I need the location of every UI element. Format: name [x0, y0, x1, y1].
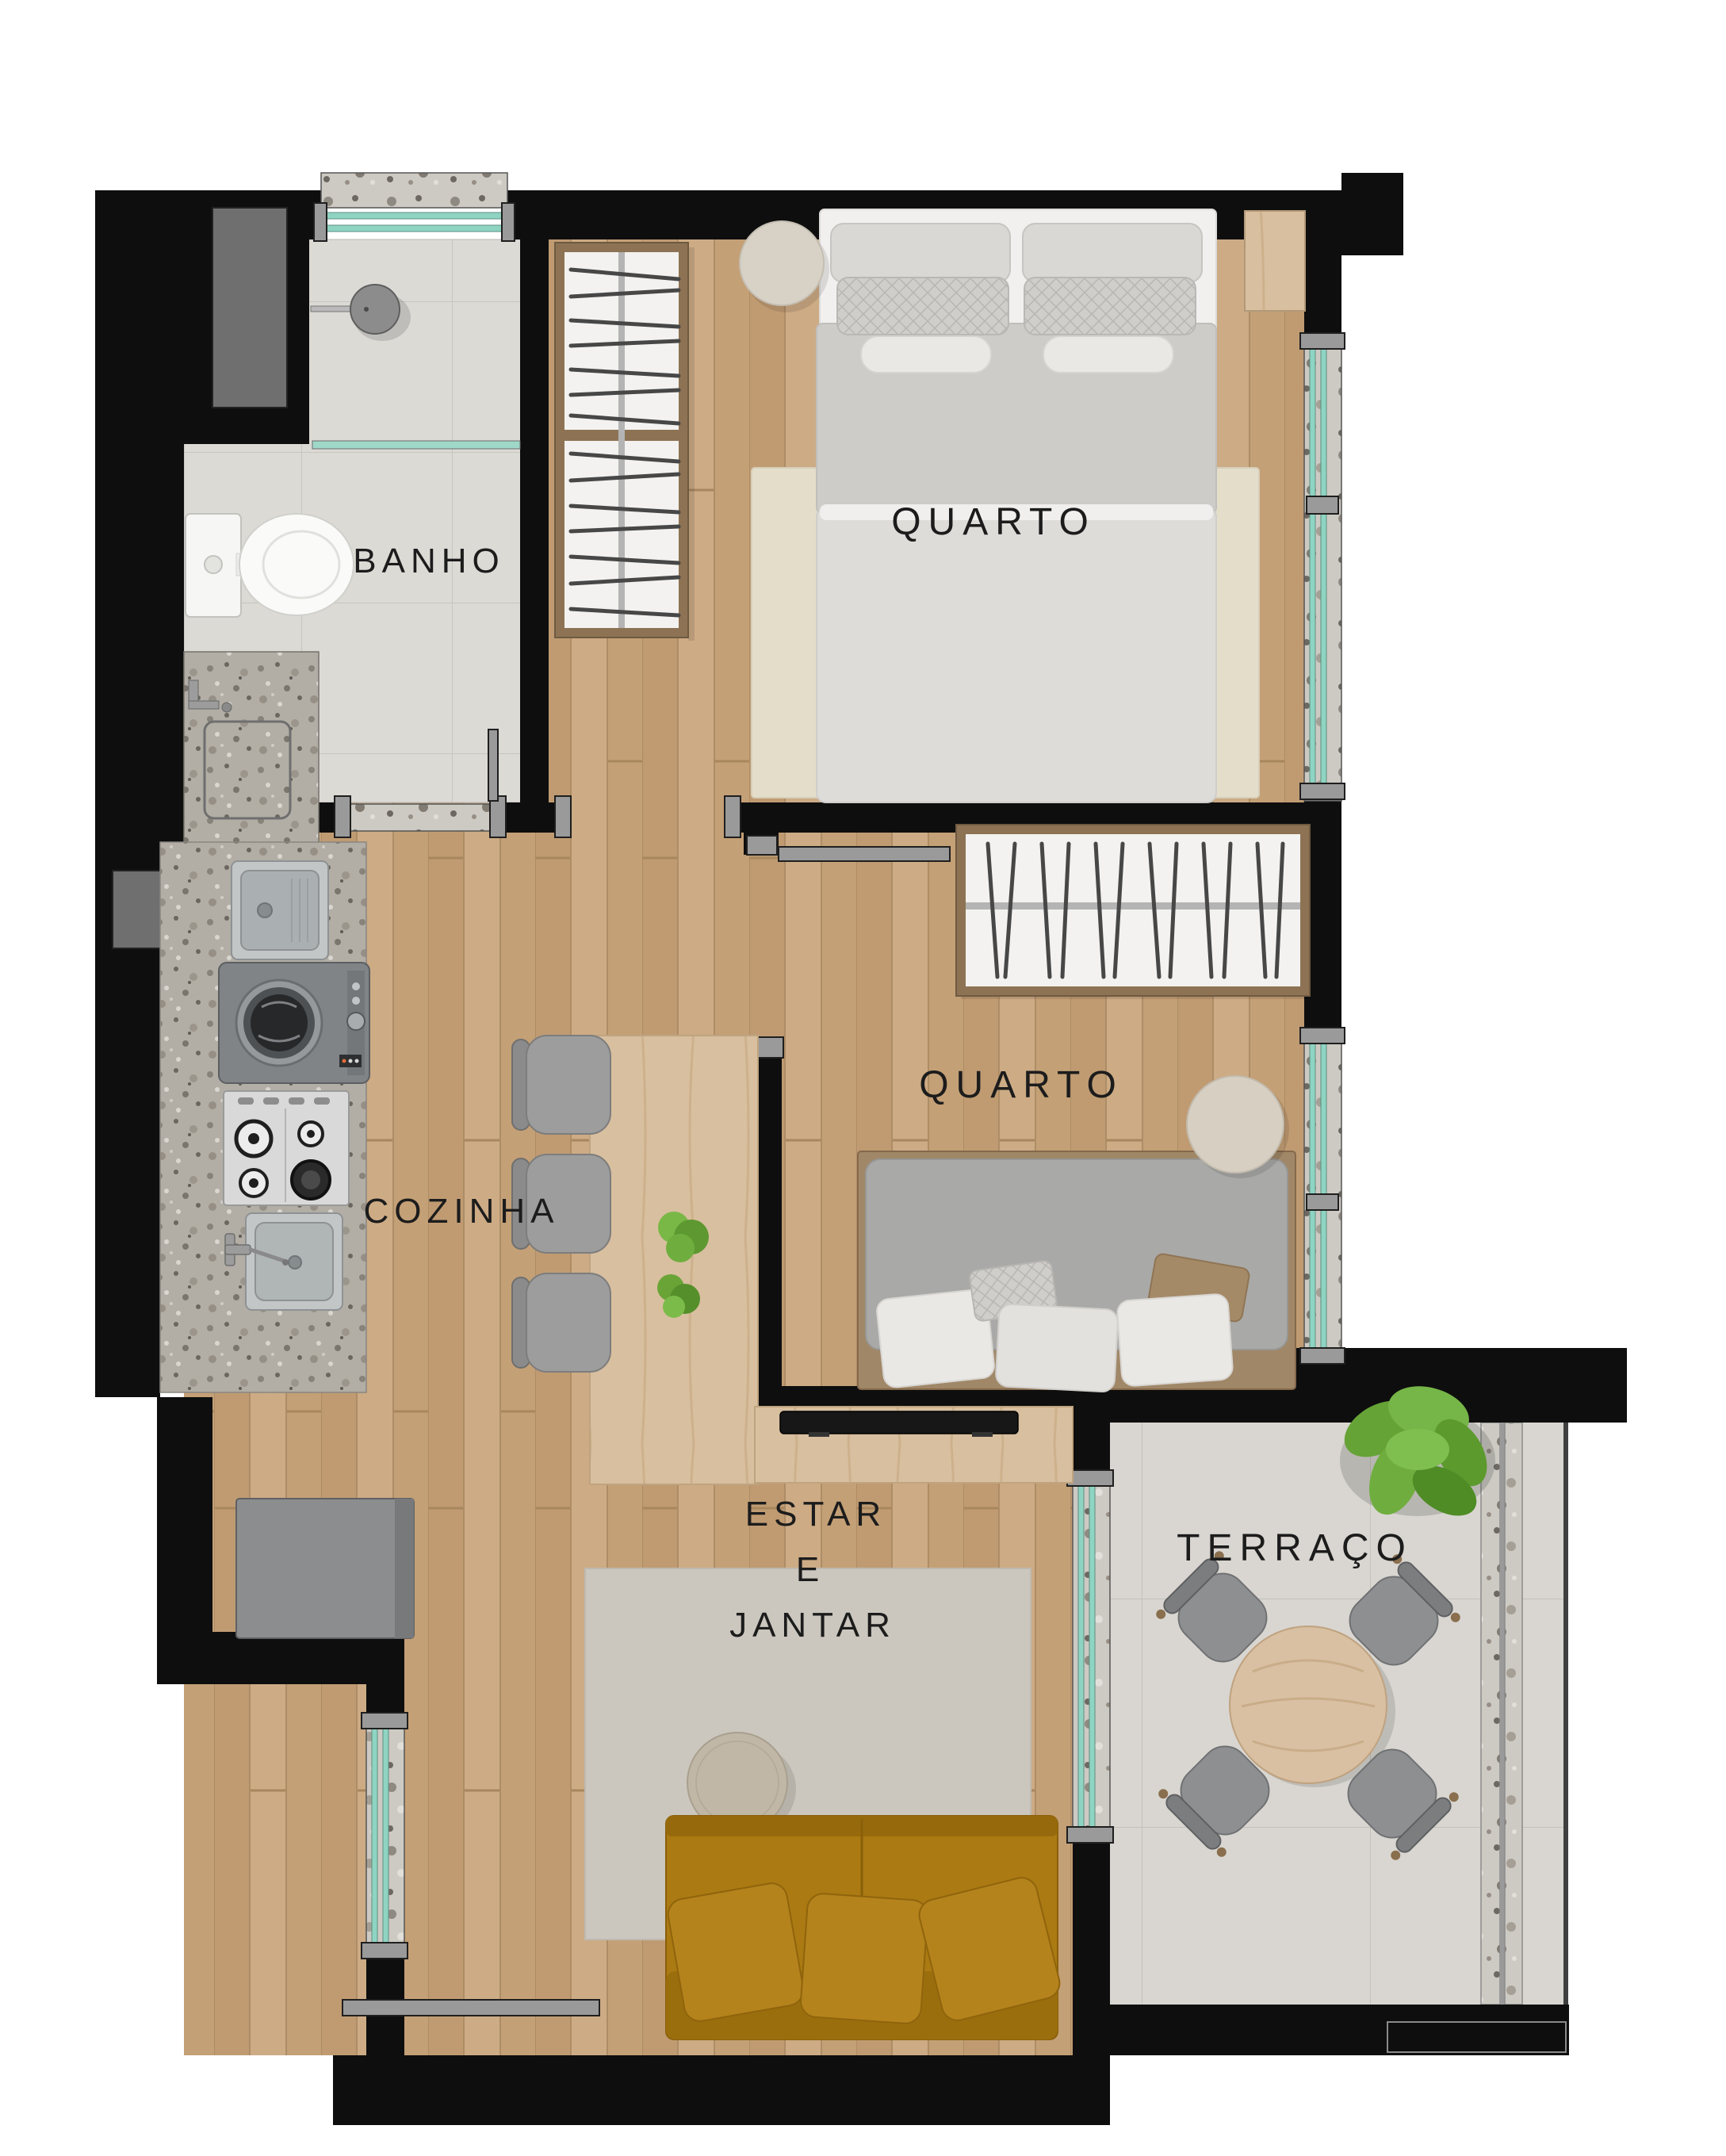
cooktop: [224, 1091, 349, 1205]
room-label-bedroom-2: QUARTO: [919, 1064, 1123, 1106]
terrace-border-gap: [1500, 1423, 1505, 2005]
wardrobe-bedroom-2: [956, 825, 1310, 999]
pillow-patterned: [1024, 278, 1196, 335]
window-bedroom-1: [1300, 333, 1345, 801]
shaft-duct-top: [212, 208, 287, 408]
room-label-living-1: ESTAR: [745, 1495, 886, 1534]
washing-machine: [219, 963, 369, 1083]
room-label-bathroom: BANHO: [353, 542, 504, 580]
shower-glass-divider: [312, 441, 520, 449]
floor-plan-image: BANHO QUARTO QUARTO COZINHA ESTAR E JANT…: [0, 0, 1726, 2156]
room-label-terrace: TERRAÇO: [1177, 1527, 1413, 1569]
pillow-patterned: [837, 278, 1008, 335]
pillow: [831, 224, 1010, 282]
pillow: [1116, 1293, 1233, 1387]
refrigerator: [236, 1499, 414, 1638]
sofa-bed: [858, 1151, 1295, 1392]
window-bedroom-2: [1300, 1028, 1345, 1364]
door-leaf-bathroom: [488, 730, 498, 801]
bar-counter: [590, 1036, 758, 1484]
terrace-glass-door: [1067, 1470, 1113, 1843]
sofa: [666, 1816, 1063, 2039]
room-label-kitchen: COZINHA: [364, 1192, 560, 1231]
pillow: [995, 1304, 1118, 1392]
tv: [780, 1411, 1018, 1434]
room-label-bedroom-1: QUARTO: [891, 501, 1096, 543]
door-leaf-living: [343, 2000, 599, 2016]
room-label-living-2: E: [796, 1550, 825, 1589]
terrace-border-strip-2: [1505, 1423, 1522, 2005]
wardrobe-bedroom-1: [555, 243, 695, 641]
door-leaf-bedroom-2: [779, 847, 950, 861]
laundry-sink: [232, 861, 328, 959]
sofa-cushion: [666, 1881, 806, 2024]
terrace-border-strip: [1481, 1423, 1500, 2005]
pillow: [1023, 224, 1202, 282]
bar-chair: [512, 1036, 610, 1134]
window-top: [314, 173, 515, 241]
room-label-living-3: JANTAR: [729, 1606, 896, 1645]
doorway-bracket-stub: [747, 836, 777, 855]
doorway-jamb-divider: [725, 796, 741, 837]
vanity-counter: [184, 652, 319, 863]
sofa-cushion: [800, 1893, 929, 2024]
bolster-pillow: [1043, 336, 1173, 373]
tv-console: [755, 1407, 1073, 1483]
toilet: [186, 514, 354, 617]
floor-plan-page: BANHO QUARTO QUARTO COZINHA ESTAR E JANT…: [0, 0, 1726, 2156]
doorway-jamb-bedroom-1: [555, 796, 571, 837]
terrace-wall-inset: [1387, 2022, 1566, 2052]
bar-chair: [512, 1273, 610, 1372]
nightstand: [1245, 211, 1305, 311]
bolster-pillow: [861, 336, 991, 373]
terrace-east-edge: [1563, 1423, 1568, 2055]
window-living: [362, 1713, 408, 1959]
